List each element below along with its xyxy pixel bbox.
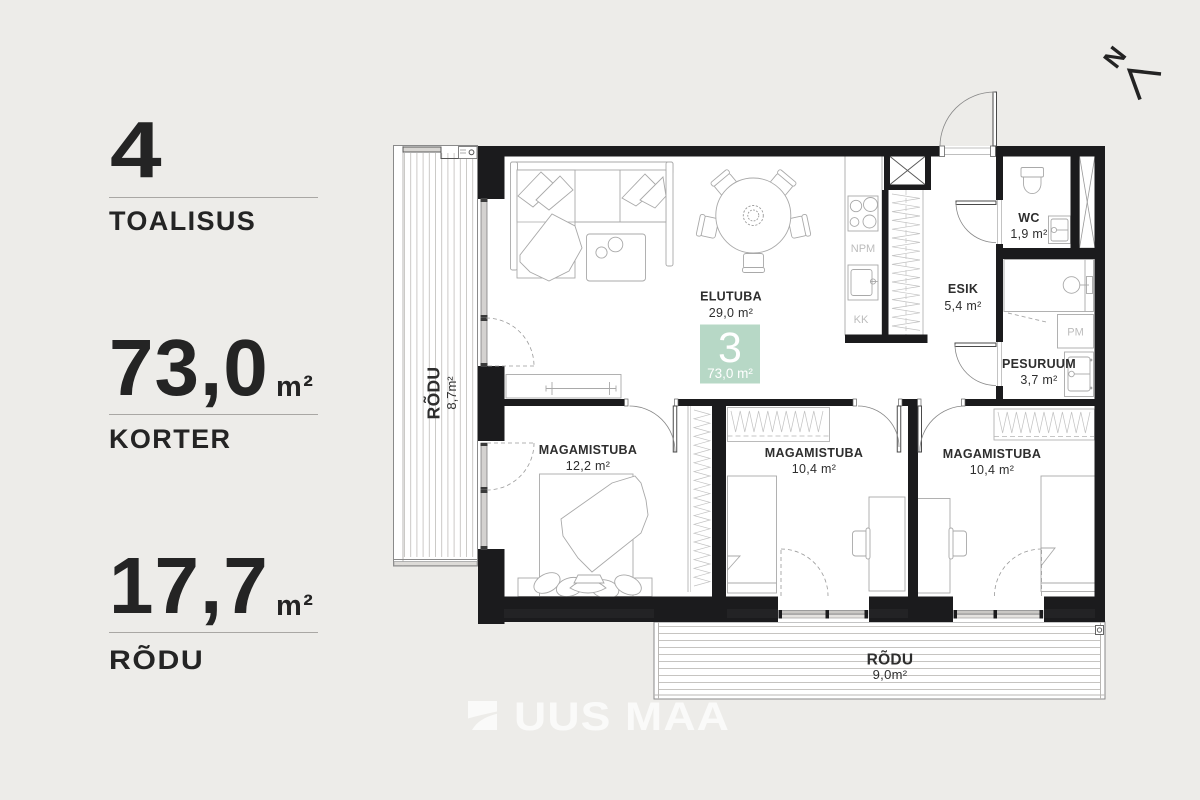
svg-text:10,4 m²: 10,4 m² <box>970 463 1014 477</box>
svg-text:MAGAMISTUBA: MAGAMISTUBA <box>943 447 1041 461</box>
svg-text:3: 3 <box>718 324 742 372</box>
svg-text:10,4 m²: 10,4 m² <box>792 462 836 476</box>
svg-text:PM: PM <box>1067 327 1084 339</box>
svg-text:RÕDU: RÕDU <box>423 367 444 420</box>
svg-text:ESIK: ESIK <box>948 282 978 296</box>
svg-text:MAGAMISTUBA: MAGAMISTUBA <box>539 443 637 457</box>
svg-text:PESURUUM: PESURUUM <box>1002 357 1076 371</box>
svg-text:1,9 m²: 1,9 m² <box>1010 227 1047 241</box>
svg-text:KK: KK <box>854 314 869 326</box>
svg-text:8,7m²: 8,7m² <box>444 376 459 410</box>
svg-text:5,4 m²: 5,4 m² <box>944 299 981 313</box>
svg-text:12,2 m²: 12,2 m² <box>566 459 610 473</box>
svg-text:29,0 m²: 29,0 m² <box>709 306 753 320</box>
svg-text:3,7 m²: 3,7 m² <box>1020 373 1057 387</box>
svg-text:WC: WC <box>1018 211 1039 225</box>
svg-text:RÕDU: RÕDU <box>867 651 914 669</box>
svg-text:73,0 m²: 73,0 m² <box>707 366 753 381</box>
svg-text:UUS MAA: UUS MAA <box>514 695 730 739</box>
svg-text:9,0m²: 9,0m² <box>873 667 908 682</box>
svg-text:NPM: NPM <box>851 243 875 255</box>
svg-text:ELUTUBA: ELUTUBA <box>700 290 762 304</box>
svg-text:MAGAMISTUBA: MAGAMISTUBA <box>765 446 863 460</box>
